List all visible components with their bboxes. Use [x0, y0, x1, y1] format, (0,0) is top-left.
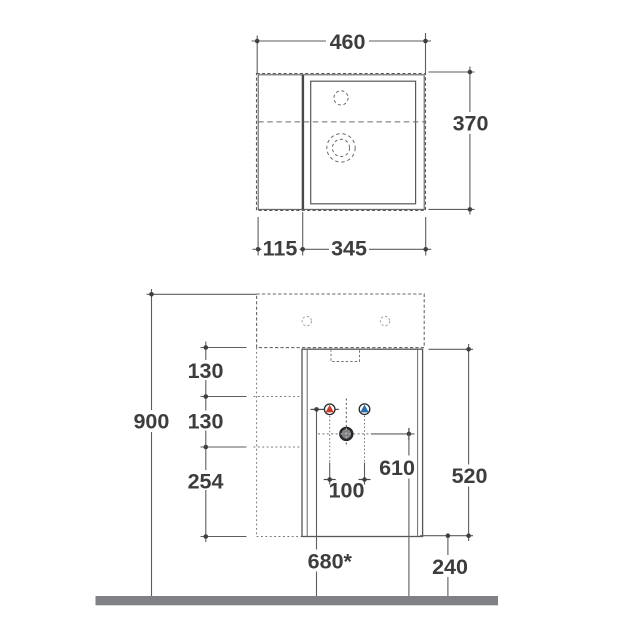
svg-text:130: 130	[188, 359, 224, 383]
svg-text:460: 460	[330, 30, 366, 54]
svg-text:100: 100	[329, 479, 365, 503]
svg-text:520: 520	[452, 464, 488, 488]
svg-text:370: 370	[453, 112, 489, 136]
svg-text:254: 254	[188, 469, 224, 493]
svg-text:680*: 680*	[308, 549, 353, 573]
svg-text:240: 240	[432, 555, 468, 579]
svg-text:345: 345	[331, 237, 367, 261]
svg-text:610: 610	[379, 456, 415, 480]
svg-text:900: 900	[133, 410, 169, 434]
svg-text:115: 115	[263, 237, 298, 261]
svg-text:130: 130	[188, 410, 224, 434]
